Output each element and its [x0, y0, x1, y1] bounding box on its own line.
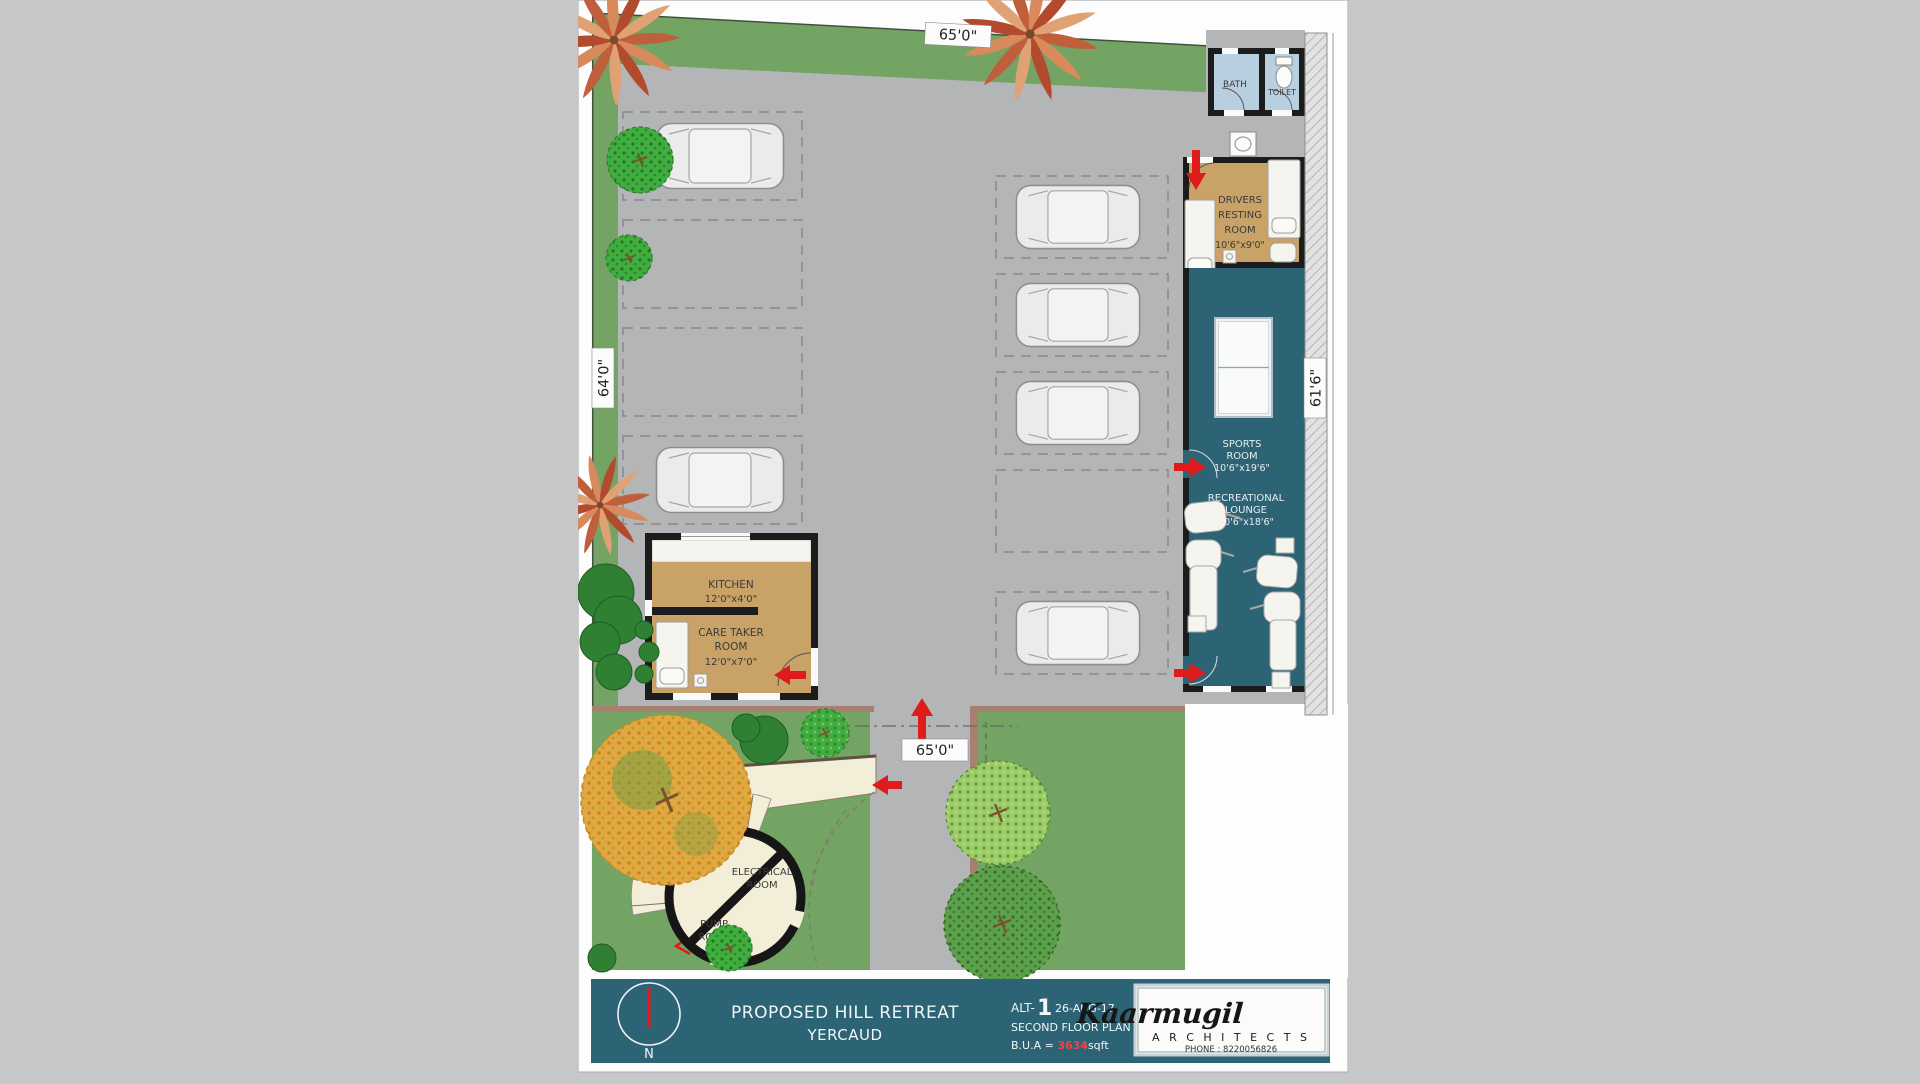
bath-toilet-block: BATH TOILET	[1208, 48, 1305, 116]
alt-prefix: ALT-	[1011, 1001, 1035, 1015]
lounge-label2: LOUNGE	[1225, 505, 1267, 516]
svg-text:61'6": 61'6"	[1309, 369, 1325, 407]
car-top-view	[1016, 283, 1139, 346]
side-table	[694, 674, 707, 687]
stool	[1223, 250, 1236, 263]
pillow	[660, 668, 684, 684]
kitchen-counter	[652, 540, 811, 562]
tree-round	[706, 925, 752, 971]
window	[1203, 686, 1231, 692]
car-top-view	[1016, 601, 1139, 664]
car-top-view	[657, 448, 784, 513]
car-top-view	[1016, 185, 1139, 248]
floor-plan-svg: KITCHEN 12'0"x4'0" CARE TAKER ROOM 12'0"…	[578, 0, 1348, 1080]
drivers-label2: RESTING	[1218, 210, 1262, 221]
project-title: PROPOSED HILL RETREAT	[731, 1003, 959, 1023]
window	[1222, 48, 1238, 54]
dimension-label-bottom: 65'0"	[902, 739, 968, 761]
caretaker-label: CARE TAKER	[698, 627, 763, 639]
dimension-label-right: 61'6"	[1304, 358, 1326, 418]
tree-dotted	[946, 761, 1050, 865]
bua-prefix: B.U.A =	[1011, 1039, 1057, 1052]
tree-orange	[581, 715, 751, 885]
electrical-label1: ELECTRICAL	[732, 867, 793, 878]
tree-dotted	[944, 866, 1060, 982]
project-location: YERCAUD	[806, 1026, 882, 1044]
window	[738, 693, 780, 700]
garden-border	[970, 706, 1185, 712]
bua-value: 3634	[1057, 1039, 1088, 1052]
caretaker-size: 12'0"x7'0"	[705, 657, 757, 668]
plan-sheet: KITCHEN 12'0"x4'0" CARE TAKER ROOM 12'0"…	[578, 0, 1348, 1080]
pillow	[1272, 218, 1296, 233]
sports-label2: ROOM	[1226, 451, 1257, 462]
door-opening	[1272, 110, 1292, 116]
bua-suffix: sqft	[1088, 1039, 1109, 1052]
toilet-cistern	[1276, 57, 1292, 65]
alt-number: 1	[1037, 996, 1052, 1021]
wall-opening	[794, 911, 799, 926]
electrical-label2: ROOM	[746, 880, 777, 891]
drivers-label1: DRIVERS	[1218, 195, 1262, 206]
bath-label: BATH	[1223, 80, 1247, 90]
north-label: N	[644, 1047, 654, 1062]
toilet-bowl	[1276, 66, 1292, 88]
drivers-label3: ROOM	[1224, 225, 1255, 236]
door-opening	[811, 648, 818, 686]
sports-size: 10'6"x19'6"	[1214, 463, 1270, 474]
caretaker-label2: ROOM	[715, 641, 748, 653]
drivers-size: 10'6"x9'0"	[1215, 240, 1265, 251]
dimension-label-top: 65'0"	[924, 22, 991, 47]
cushion	[1270, 243, 1296, 262]
title-block: N PROPOSED HILL RETREAT YERCAUD ALT- 1 2…	[591, 979, 1330, 1063]
window	[1275, 48, 1289, 54]
tree-round	[801, 709, 849, 757]
car-top-view	[1016, 381, 1139, 444]
kitchen-label: KITCHEN	[708, 579, 754, 591]
door-opening	[1224, 110, 1244, 116]
empty-plot-area	[1185, 704, 1348, 978]
toilet-label: TOILET	[1267, 88, 1296, 97]
logo-name: Kaarmugil	[1075, 997, 1244, 1030]
logo-phone: PHONE : 8220056826	[1185, 1045, 1277, 1055]
svg-text:65'0": 65'0"	[938, 27, 977, 45]
partition-wall	[652, 607, 758, 615]
tree-round	[606, 235, 652, 281]
washbasin	[1230, 132, 1256, 156]
dimension-label-left: 64'0"	[592, 348, 614, 408]
sports-lounge-block: SPORTS ROOM 10'6"x19'6" RECREATIONAL LOU…	[1183, 268, 1305, 692]
svg-text:65'0": 65'0"	[916, 743, 954, 759]
logo-subtitle: A R C H I T E C T S	[1152, 1031, 1310, 1044]
tree-round	[607, 127, 673, 193]
svg-text:64'0": 64'0"	[597, 359, 613, 397]
sports-label1: SPORTS	[1223, 439, 1262, 450]
bua-line: B.U.A = 3634sqft	[1011, 1039, 1109, 1052]
kitchen-size: 12'0"x4'0"	[705, 594, 757, 605]
window	[673, 693, 711, 700]
car-top-view	[657, 124, 784, 189]
window	[645, 600, 652, 616]
